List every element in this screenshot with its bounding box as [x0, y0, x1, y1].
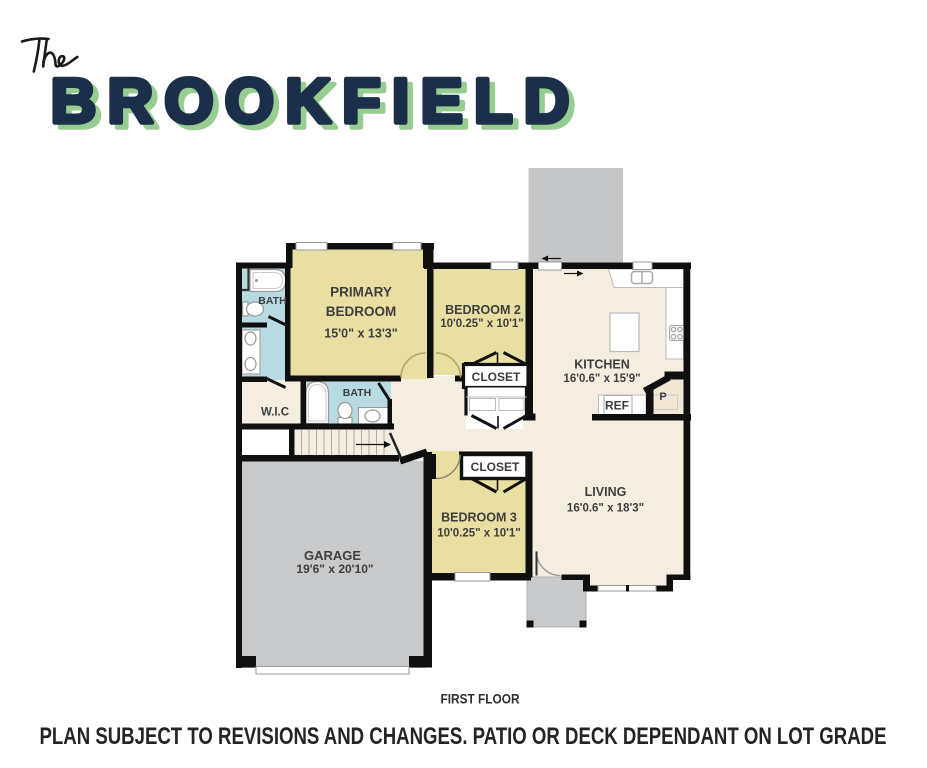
svg-text:P: P [659, 391, 666, 403]
svg-text:W.I.C: W.I.C [261, 407, 289, 419]
svg-text:10'0.25" x 10'1": 10'0.25" x 10'1" [437, 528, 521, 540]
svg-text:BROOKFIELD: BROOKFIELD [51, 66, 570, 136]
svg-text:16'0.6" x 15'9": 16'0.6" x 15'9" [563, 373, 640, 385]
svg-text:19'6" x 20'10": 19'6" x 20'10" [296, 562, 373, 576]
svg-text:15'0" x 13'3": 15'0" x 13'3" [324, 327, 397, 341]
svg-text:KITCHEN: KITCHEN [574, 358, 630, 372]
svg-text:GARAGE: GARAGE [304, 548, 361, 563]
svg-text:10'0.25" x 10'1": 10'0.25" x 10'1" [440, 318, 524, 330]
svg-text:LIVING: LIVING [585, 485, 627, 499]
svg-text:REF: REF [605, 399, 629, 413]
svg-text:CLOSET: CLOSET [472, 370, 521, 384]
svg-text:PLAN SUBJECT TO REVISIONS AND: PLAN SUBJECT TO REVISIONS AND CHANGES. P… [40, 723, 887, 750]
svg-text:BATH: BATH [258, 295, 286, 307]
svg-text:BEDROOM: BEDROOM [326, 304, 397, 319]
svg-text:CLOSET: CLOSET [471, 460, 520, 474]
svg-text:BEDROOM 2: BEDROOM 2 [445, 303, 521, 317]
svg-text:16'0.6" x 18'3": 16'0.6" x 18'3" [567, 503, 644, 515]
svg-text:FIRST FLOOR: FIRST FLOOR [441, 691, 520, 707]
svg-text:BATH: BATH [343, 387, 371, 399]
svg-text:BEDROOM 3: BEDROOM 3 [441, 511, 517, 525]
svg-text:PRIMARY: PRIMARY [330, 285, 392, 300]
